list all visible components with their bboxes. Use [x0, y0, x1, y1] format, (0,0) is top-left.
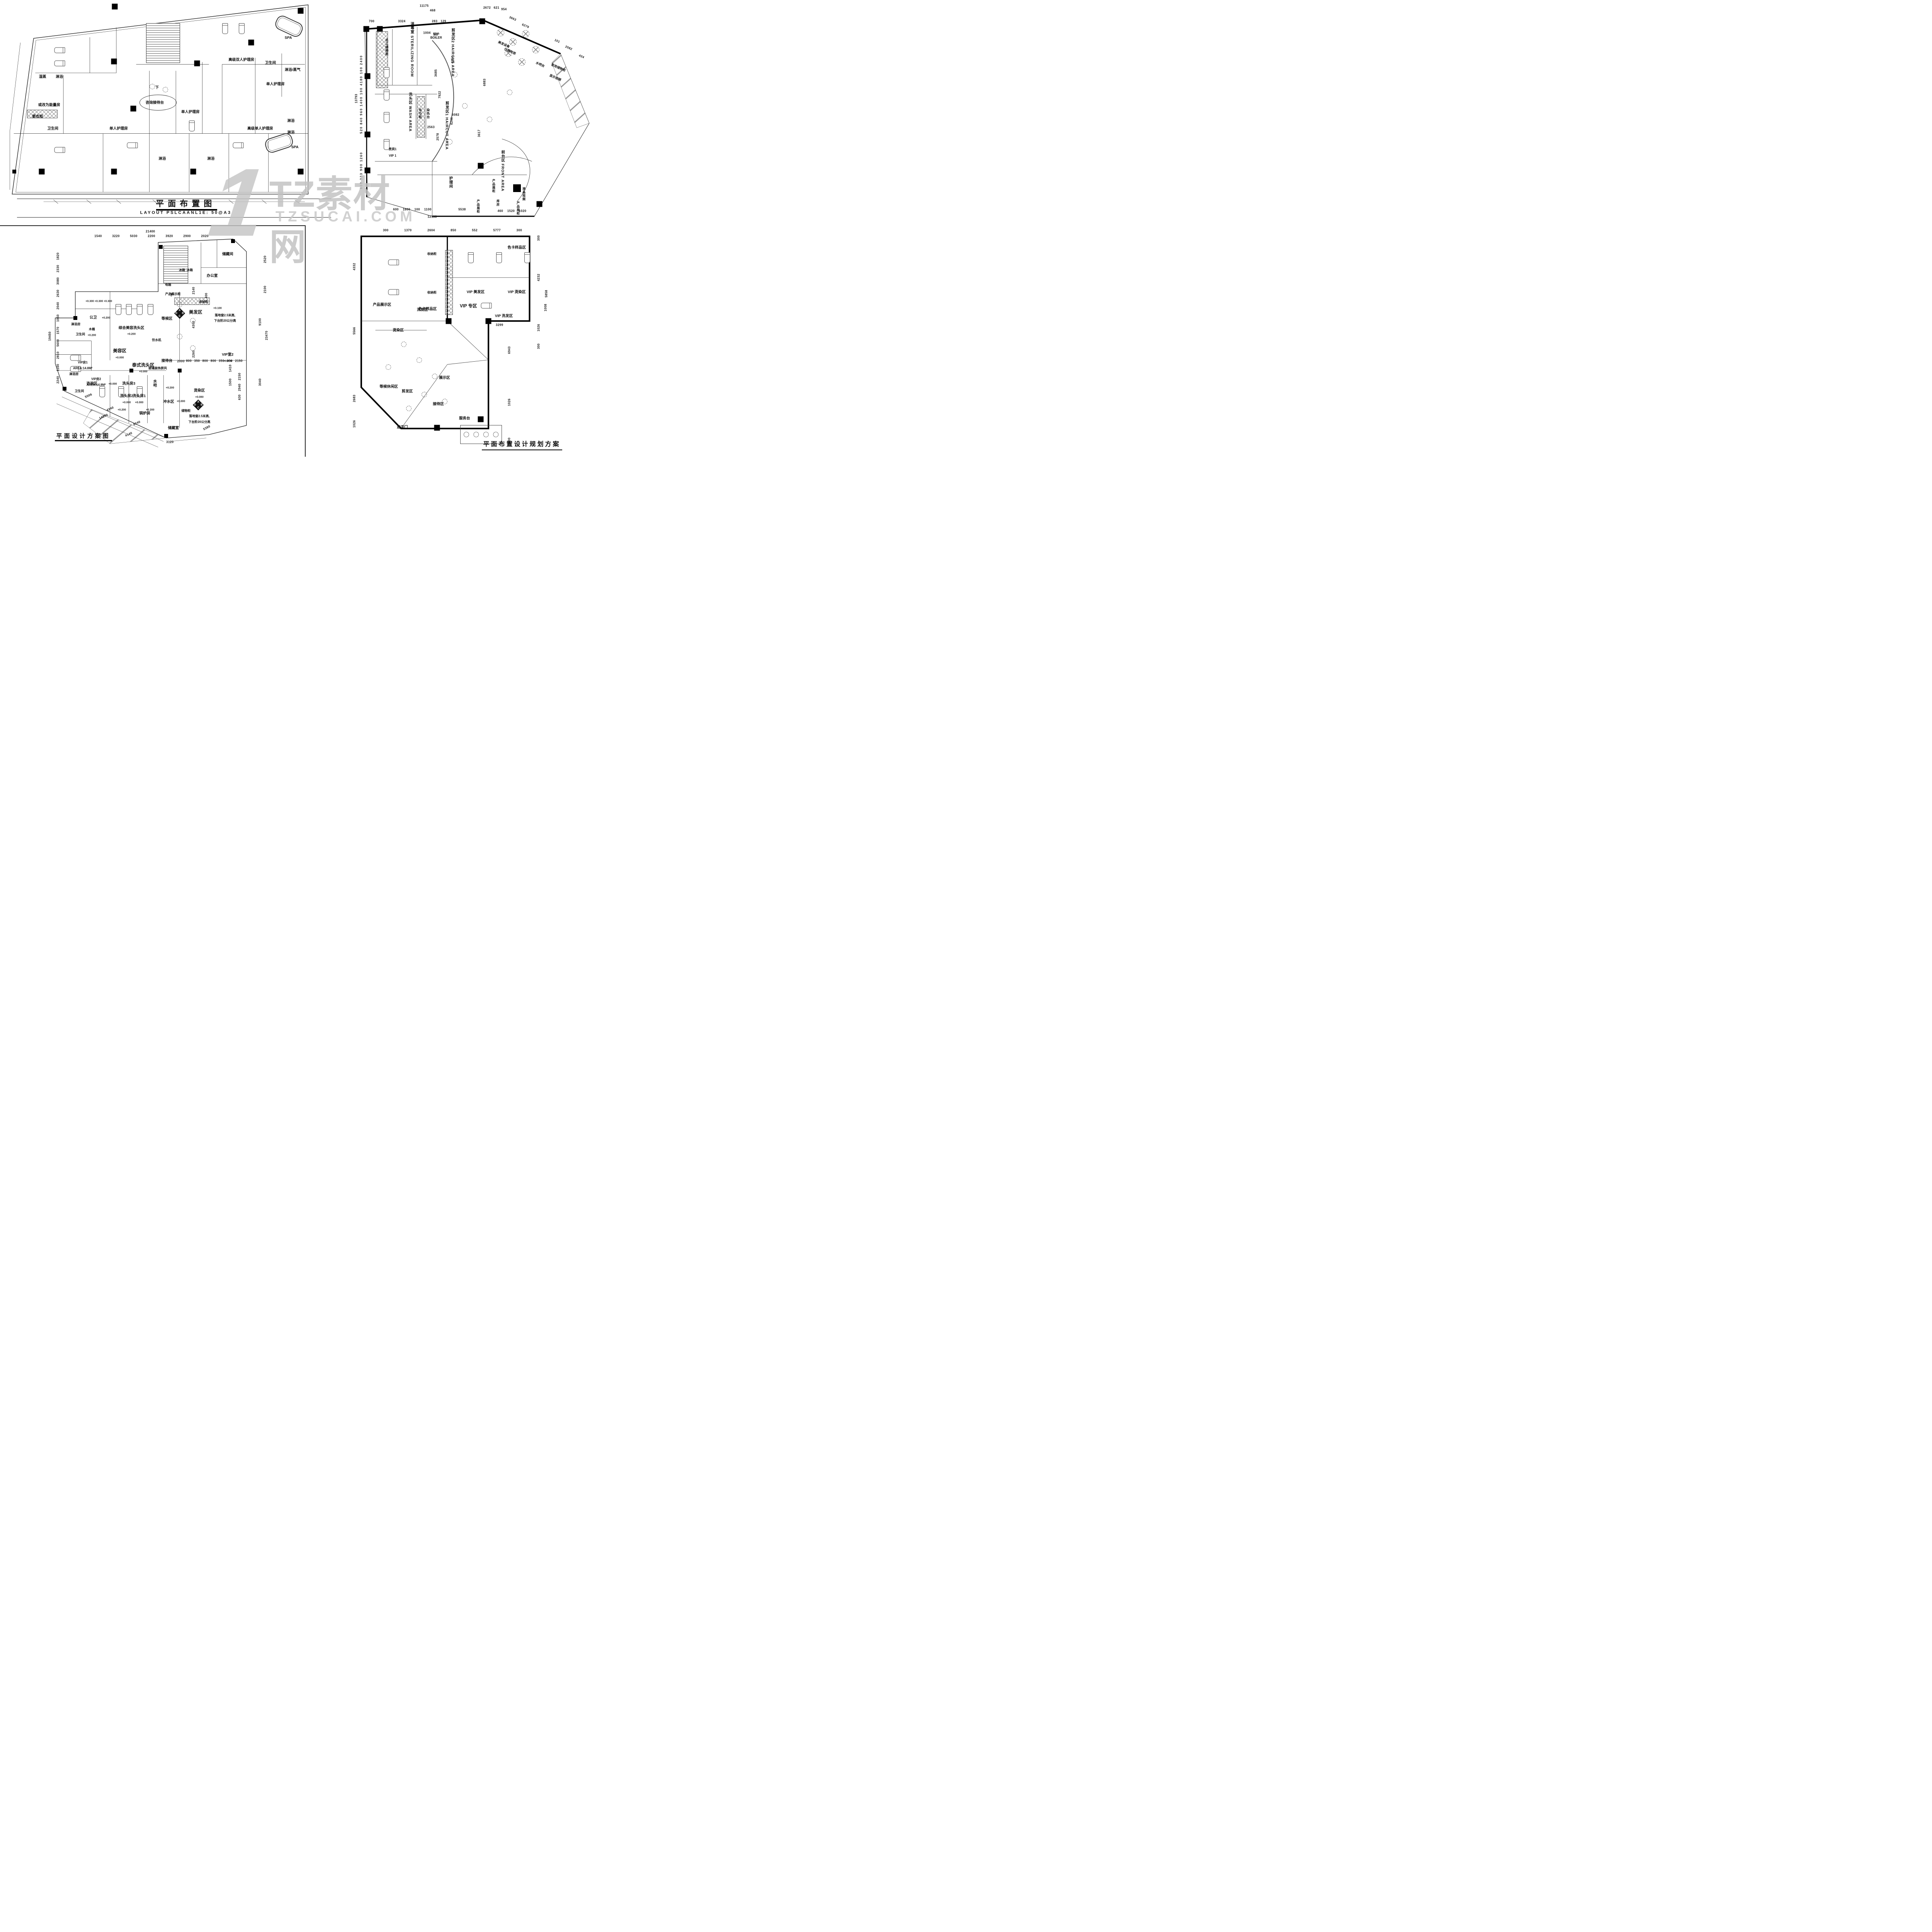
- level-mark: +0.100: [213, 307, 222, 310]
- round-table-icon: [522, 30, 529, 37]
- label-fridge: 冰箱: [187, 268, 193, 272]
- dim: 2140: [192, 287, 195, 294]
- compass-letter: C: [179, 315, 180, 318]
- compass-letter: A: [197, 401, 199, 403]
- zone-label-combined-wash: 综合美容洗头区: [119, 327, 145, 331]
- sheet-divider-horizontal: [0, 225, 305, 226]
- zone-label-waiting-lounge: 等候休闲区: [379, 385, 398, 389]
- zone-label-vip-hair: VIP 美发区: [467, 290, 485, 294]
- label-service-desk: 服务台: [459, 417, 470, 421]
- label-dye-table: 染色台: [427, 109, 430, 119]
- label-product-case: 产品展柜: [516, 201, 520, 215]
- massage-bed-icon: [116, 304, 121, 315]
- massage-bed-icon: [233, 143, 244, 148]
- dim-chain-bottom-right: 460 1520 1020: [498, 209, 527, 213]
- room-label-toilet: 卫生间: [76, 332, 85, 336]
- massage-bed-icon: [127, 143, 138, 148]
- dim: 1026: [507, 399, 511, 406]
- compass-icon: A B C D: [192, 399, 204, 411]
- column: [434, 425, 440, 430]
- zone-label-beauty: 美容区: [113, 349, 126, 354]
- zone-label-rinse: 冲水区: [163, 400, 174, 405]
- dim: 1026: [352, 420, 356, 427]
- level-mark: +0.000: [116, 356, 124, 359]
- column: [111, 169, 117, 175]
- label-fridge: 冰箱: [179, 268, 185, 272]
- dim: 2100: [264, 286, 267, 293]
- styling-chair-icon: [401, 342, 406, 347]
- dim: 300: [537, 235, 540, 241]
- round-table-icon: [509, 38, 517, 46]
- column: [298, 8, 303, 14]
- dim-chain-bottom: 600 1800 100 1100: [393, 207, 431, 211]
- label-glass-screen: 玻璃装饰屏风: [148, 366, 167, 370]
- room-label-energy-room: 或改为能量房: [38, 103, 60, 107]
- level-mark: +0.200: [166, 386, 174, 389]
- column: [130, 106, 136, 112]
- zone-label-reception: 接待区: [433, 402, 444, 406]
- level-mark: +0.000: [139, 370, 148, 373]
- dim-chain-lower-left: 800 333 900 1260: [360, 152, 363, 189]
- massage-bed-icon: [70, 355, 81, 361]
- zone-label-dye: 烫染区: [393, 329, 404, 333]
- dim: 2520: [264, 256, 267, 263]
- dim: 3685: [434, 69, 438, 77]
- dim-chain-top: 1540 3220 5030 2200 3920 2900 2020: [94, 234, 209, 238]
- dim: 9100: [259, 318, 262, 325]
- room-label-shower: 淋浴: [287, 119, 294, 124]
- dim: 4332: [352, 263, 356, 270]
- level-mark: +0.200: [146, 408, 155, 411]
- room-label-single-care: 单人护理房: [266, 83, 285, 87]
- room-label-wash-room1: 洗头房1: [133, 394, 146, 398]
- room-label-storage: 储藏间: [222, 252, 233, 257]
- dim-chain-left: 520 840 960 1400 100 4180 100 2400: [360, 55, 363, 134]
- zone-label-color-card: 色卡样品区: [507, 246, 526, 250]
- column: [112, 4, 117, 10]
- round-table-icon: [518, 58, 526, 66]
- dim: 3120: [166, 440, 173, 444]
- dim: 4254: [451, 56, 454, 63]
- plan3-title: 平面设计方案图: [55, 433, 112, 441]
- label-storage-cabinet: 收纳柜: [427, 252, 437, 256]
- label-reception-desk: 接待台: [162, 359, 173, 364]
- column: [446, 318, 452, 324]
- plan1-title: 平面布置图: [156, 199, 216, 209]
- styling-station-icon: [468, 252, 474, 263]
- compass-icon: A B C D: [174, 308, 185, 319]
- room-label-storeroom: 库房: [496, 199, 500, 206]
- round-table-icon: [532, 46, 539, 53]
- room-label-vip1: 贵宾1: [389, 147, 396, 151]
- level-mark: +0.000: [177, 400, 185, 403]
- dim-total-left: 19450: [48, 332, 52, 341]
- level-mark: +0.000: [122, 401, 131, 404]
- label-water-bar: 水吧: [152, 379, 156, 388]
- room-label-boiler: 锅炉 BOILER: [430, 32, 443, 39]
- dim-chain-left: 2240 1160 2810 5600 1570 1050 2040 2630 …: [56, 252, 60, 383]
- note-window: 落地窗2.5米高,: [189, 415, 209, 418]
- column: [231, 239, 235, 243]
- dim: 11175: [420, 4, 429, 8]
- dim-chain-mid: 800 350 800 800 350 800 2150: [186, 359, 242, 363]
- dim: 468: [430, 9, 436, 12]
- label-stairs-down: 下: [155, 86, 159, 90]
- label-entrance: 进店门: [397, 425, 408, 430]
- chair-icon: [163, 87, 168, 92]
- zone-label-product-display: 产品展示区: [373, 303, 391, 308]
- chair-icon: [150, 84, 155, 89]
- label-towel-cabinet: 毛巾柜: [418, 109, 422, 119]
- styling-chair-icon: [462, 103, 468, 109]
- zone-label-perm-dye: 烫染区: [194, 389, 205, 393]
- room-label-shower: 淋浴: [159, 157, 166, 162]
- zone-label-vip-wash: VIP 洗发区: [495, 314, 513, 318]
- dim: 3324: [398, 20, 405, 23]
- room-label-shower-room: 淋浴房: [71, 322, 80, 326]
- dim: 6082: [452, 113, 459, 116]
- room-label-office: 办公室: [207, 274, 218, 279]
- level-mark: +0.200: [127, 333, 136, 336]
- dim: 6943: [507, 346, 511, 354]
- column: [364, 26, 369, 32]
- zone-label-vip-zone: VIP 专区: [460, 304, 477, 309]
- room-label-shower: 淋浴: [287, 131, 294, 135]
- dim: 2260: [192, 350, 195, 357]
- dim: 3299: [496, 323, 503, 327]
- styling-chair-icon: [487, 117, 492, 122]
- room-label-store-room: 储藏室: [168, 426, 179, 430]
- compass-letter: C: [197, 406, 199, 409]
- compass-letter: B: [182, 312, 184, 315]
- dim: 4300: [192, 321, 195, 328]
- dim: 5858: [544, 290, 548, 297]
- dim-chain-right-small: 630 2940 2150: [238, 373, 241, 400]
- plan1-subtitle: LAYOUT PSLCAANL1E: 50@A3: [140, 211, 231, 216]
- room-label-wash-room2: 洗头房2: [120, 394, 133, 398]
- room-label-vip2-area: AREA:14.8M²: [87, 383, 106, 387]
- compass-letter: D: [194, 403, 196, 406]
- dim: 2683: [352, 395, 356, 402]
- dim-chain-top: 300 1370 2604 850 552 5777 300: [383, 229, 522, 232]
- label-product-case: 产品展柜: [492, 179, 495, 193]
- massage-bed-icon: [148, 304, 153, 315]
- zone-label-hair: 美发区: [189, 310, 202, 315]
- column: [479, 19, 485, 24]
- cad-sheet: 湿蒸 淋浴 或改为能量房 更衣柜 卫生间 单人护理房 下 咨询接待台 单人护理房…: [0, 0, 608, 457]
- dim: 3040: [259, 378, 262, 386]
- room-label-vip1-area: AREA:14.8M²: [73, 366, 92, 370]
- room-label-vip1: VIP房1: [78, 361, 88, 364]
- room-label-spa: SPA: [285, 36, 292, 40]
- plan1-panel: 湿蒸 淋浴 或改为能量房 更衣柜 卫生间 单人护理房 下 咨询接待台 单人护理房…: [4, 2, 335, 218]
- dim: 1004: [423, 31, 430, 35]
- note-window: 落地窗2.5米高,: [215, 313, 235, 317]
- plan2-panel: 员工储物柜 消毒室 STERILIZING ROOM 锅炉 BOILER 美发设…: [357, 0, 607, 224]
- dim: 1500: [229, 378, 232, 386]
- label-locker: 储物柜: [181, 409, 190, 413]
- dim: 2563: [427, 125, 435, 129]
- dim: 283: [432, 20, 438, 23]
- room-label-toilet: 卫生间: [47, 127, 58, 131]
- dim: 1410: [229, 364, 232, 372]
- massage-bed-icon: [137, 304, 143, 315]
- note-window: 下台阶20公分高: [214, 319, 236, 323]
- room-label-spa: SPA: [291, 146, 299, 150]
- label-lcd-video: 液晶视频: [522, 187, 526, 201]
- zone-label-display: 展示区: [439, 376, 450, 381]
- dim: 621: [494, 6, 500, 9]
- dim: 300: [537, 344, 540, 349]
- styling-chair-icon: [507, 90, 512, 95]
- dim: 129: [440, 20, 446, 23]
- massage-bed-icon: [54, 147, 65, 153]
- label-product-display-cabinet: 产品展示柜: [165, 293, 180, 296]
- room-label-wash-room3: 洗头房3: [122, 382, 135, 386]
- column: [478, 163, 484, 169]
- zone-label-vip-dye: VIP 烫染区: [508, 290, 526, 294]
- zone-label-haircut: 剪发区: [402, 389, 413, 394]
- room-label-shower-steam: 淋浴/蒸气: [285, 68, 301, 73]
- label-wood-tub: 木桶: [89, 327, 95, 331]
- title-rule: [17, 199, 331, 199]
- wash-bed-icon: [481, 303, 492, 309]
- compass-letter: B: [201, 403, 202, 406]
- wash-bed-icon: [388, 259, 399, 265]
- label-storage-cabinet: 收纳柜: [199, 300, 208, 304]
- dim: 2000: [177, 360, 184, 363]
- dim: 1026: [537, 324, 540, 332]
- plan3-walls: [55, 239, 247, 447]
- label-storage-cabinet: 收纳柜: [427, 291, 437, 294]
- room-label-deluxe-single-care: 高级单人护理房: [247, 127, 273, 131]
- level-mark: +0.080: [195, 396, 204, 398]
- level-mark: +0.200: [117, 408, 126, 411]
- styling-station-icon: [524, 252, 530, 263]
- zone-label-waiting: 等候区: [162, 317, 173, 321]
- wash-bed-icon: [99, 386, 105, 397]
- stairs-icon: [146, 23, 180, 63]
- zone-label-color-card: 色卡样品区: [418, 307, 437, 311]
- styling-chair-icon: [177, 334, 182, 339]
- column: [536, 201, 542, 207]
- dim: 700: [369, 20, 374, 23]
- label-electric-box: 电箱: [165, 283, 171, 286]
- column: [194, 61, 200, 66]
- massage-bed-icon: [222, 23, 228, 34]
- massage-bed-icon: [126, 304, 132, 315]
- level-mark: +0.300: [104, 300, 112, 303]
- room-label-shower: 淋浴: [56, 75, 63, 80]
- column: [298, 169, 303, 175]
- room-label-wardrobe: 更衣柜: [32, 115, 43, 119]
- column: [159, 245, 163, 249]
- room-label-consult-reception: 咨询接待台: [146, 101, 164, 105]
- level-mark: +0.300: [95, 300, 103, 303]
- dim: 6246: [450, 117, 453, 124]
- room-label-care-room: 护理间: [448, 176, 452, 189]
- dim: 3617: [477, 129, 481, 137]
- compass-letter: D: [175, 312, 177, 315]
- massage-bed-icon: [239, 23, 245, 34]
- massage-bed-icon: [54, 48, 65, 53]
- room-label-vip2: VIP房2: [91, 378, 101, 381]
- room-label-toilet: 卫生间: [265, 61, 276, 65]
- label-product-case: 产品展柜: [476, 199, 480, 213]
- massage-bed-icon: [189, 121, 195, 131]
- styling-station-icon: [496, 252, 502, 263]
- column: [364, 132, 370, 138]
- column: [364, 167, 370, 173]
- column: [111, 59, 117, 65]
- level-mark: +0.200: [102, 316, 111, 319]
- level-mark: +0.000: [109, 383, 117, 385]
- column: [178, 369, 182, 372]
- column: [12, 170, 16, 173]
- sheet-divider-vertical: [305, 225, 306, 457]
- dim: 2672: [483, 6, 491, 9]
- wash-bed-icon: [384, 112, 389, 123]
- plan4-title: 平面布置设计规划方案: [482, 441, 562, 450]
- column: [73, 316, 77, 320]
- massage-bed-icon: [54, 60, 65, 66]
- title-rule: [17, 217, 331, 218]
- column: [478, 417, 484, 422]
- level-mark: +0.300: [85, 300, 94, 303]
- storage-cabinet-icon: [445, 250, 452, 315]
- label-staff-lockers: 员工储物柜: [385, 38, 389, 56]
- plan3-panel: A B C D A B C D 储藏间 办公室 冰箱 冰箱 下 电箱 产品展示柜…: [3, 226, 270, 455]
- dim: 954: [501, 8, 507, 11]
- column: [486, 318, 492, 324]
- wash-bed-icon: [384, 67, 389, 78]
- column: [513, 184, 521, 192]
- column: [129, 369, 133, 372]
- dim: 2578: [436, 133, 439, 141]
- note-window: 下台阶20公分高: [188, 420, 210, 424]
- room-label-single-care: 单人护理房: [109, 127, 128, 131]
- dim: 7922: [438, 91, 441, 98]
- room-label-shower-room: 淋浴房: [69, 372, 78, 376]
- dim-total-bottom: 12138: [427, 215, 437, 219]
- dim-total-top: 21400: [146, 230, 155, 233]
- room-label-shower: 淋浴: [207, 157, 214, 162]
- zone-label-haircut1: 剪发区1 HAIRCUT AREA: [444, 101, 449, 150]
- dim: 1008: [544, 304, 547, 311]
- room-label-deluxe-double-care: 高级双人护理房: [228, 58, 254, 62]
- column: [164, 434, 168, 438]
- zone-label-haircut2: 剪发区2 HAIRCUT AREA: [450, 29, 454, 77]
- column: [364, 73, 370, 79]
- room-label-vip-suite2: VIP室2: [222, 353, 233, 357]
- wash-bed-icon: [384, 90, 389, 100]
- room-label-public-wc: 公卫: [90, 316, 97, 320]
- dim: 23470: [265, 331, 268, 340]
- styling-chair-icon: [406, 406, 412, 411]
- room-label-single-care: 单人护理房: [181, 111, 200, 115]
- level-mark: +0.200: [88, 334, 96, 337]
- dim: 6883: [483, 78, 486, 86]
- stairs-icon: [163, 246, 188, 283]
- dim: 5566: [352, 327, 356, 334]
- column: [190, 169, 196, 175]
- column: [39, 169, 44, 175]
- wash-bed-icon: [388, 289, 399, 295]
- dim-total-left: 13793: [355, 94, 358, 103]
- room-label-wet-steam: 湿蒸: [39, 75, 46, 80]
- zone-label-wash-area: 洗头区 WASH AREA: [408, 92, 412, 132]
- dim: 5538: [458, 207, 466, 211]
- room-label-sterilizing: 消毒室 STERILIZING ROOM: [409, 22, 413, 77]
- plan4-panel: 收纳柜 收纳柜 洗发区 色卡样品区 VIP 美发区 VIP 烫染区 VIP 洗发…: [350, 227, 607, 456]
- plan2-drawing: [357, 0, 607, 224]
- dim: 4232: [537, 274, 540, 281]
- label-water-dispenser: 饮水机: [152, 338, 161, 342]
- column: [248, 40, 254, 46]
- plan2-walls: [365, 20, 589, 216]
- room-label-vip1-en: VIP 1: [389, 154, 396, 158]
- level-mark: +0.000: [135, 401, 143, 404]
- zone-label-front-area: 前台区 FRONT AREA: [500, 150, 504, 191]
- styling-chair-icon: [432, 374, 437, 379]
- room-label-boiler: 锅炉房: [139, 412, 150, 416]
- compass-letter: A: [179, 309, 180, 312]
- dim: 400: [204, 293, 208, 299]
- room-label-toilet: 卫生间: [75, 389, 84, 393]
- column: [63, 387, 66, 391]
